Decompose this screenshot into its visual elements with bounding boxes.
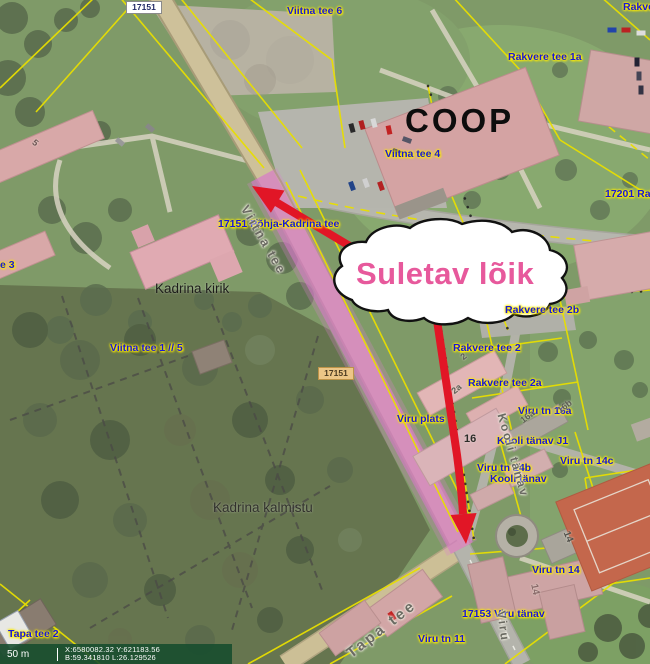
label-rakvere-tee-1a: Rakvere tee 1a <box>508 52 582 63</box>
scalebar-tick <box>57 648 58 661</box>
label-tapa-tee-2: Tapa tee 2 <box>8 629 59 640</box>
closure-annotation-text: Suletav lõik <box>356 258 534 291</box>
label-tee-3: e 3 <box>0 260 15 271</box>
road-number-badge-mid: 17151 <box>318 367 354 380</box>
label-17201-rakvere: 17201 Rakv <box>605 189 650 200</box>
circular-plaza <box>496 515 538 557</box>
label-kadrina-kalmistu: Kadrina kalmistu <box>213 501 313 515</box>
label-viitna-tee-4: Viitna tee 4 <box>385 149 440 160</box>
label-building-16: 16 <box>464 434 476 446</box>
map-viewport[interactable]: 17151 17151 Viitna tee 6 Rakve Rakvere t… <box>0 0 650 664</box>
label-rakvere-corner: Rakve <box>623 2 650 13</box>
label-viru-plats: Viru plats <box>397 414 445 425</box>
statusbar: 50 m X:6580082.32 Y:621183.56 B:59.34181… <box>0 644 232 664</box>
label-viitna-tee-6: Viitna tee 6 <box>287 6 342 17</box>
coop-store-sign: COOP <box>405 104 514 139</box>
label-viitna-tee-1-5: Viitna tee 1 // 5 <box>110 343 183 354</box>
coordinates-bl: B:59.341810 L:26.129526 <box>65 654 160 663</box>
label-viru-tn-14c: Viru tn 14c <box>560 456 614 467</box>
label-pohja-kadrina-tee: 17151 Põhja-Kadrina tee <box>218 219 339 230</box>
street-label-viru: Viru <box>495 610 512 643</box>
label-kadrina-kirik: Kadrina kirik <box>155 282 229 296</box>
coordinates-readout: X:6580082.32 Y:621183.56 B:59.341810 L:2… <box>65 646 160 663</box>
scalebar-label: 50 m <box>0 649 57 660</box>
label-viru-tn-11: Viru tn 11 <box>418 634 465 645</box>
label-rakvere-tee-2b: Rakvere tee 2b <box>505 305 579 316</box>
label-viru-tn-14: Viru tn 14 <box>532 565 580 576</box>
road-number-badge-top: 17151 <box>126 1 162 14</box>
roof-number-14-pink: 14 <box>528 583 541 596</box>
label-rakvere-tee-2a: Rakvere tee 2a <box>468 378 542 389</box>
